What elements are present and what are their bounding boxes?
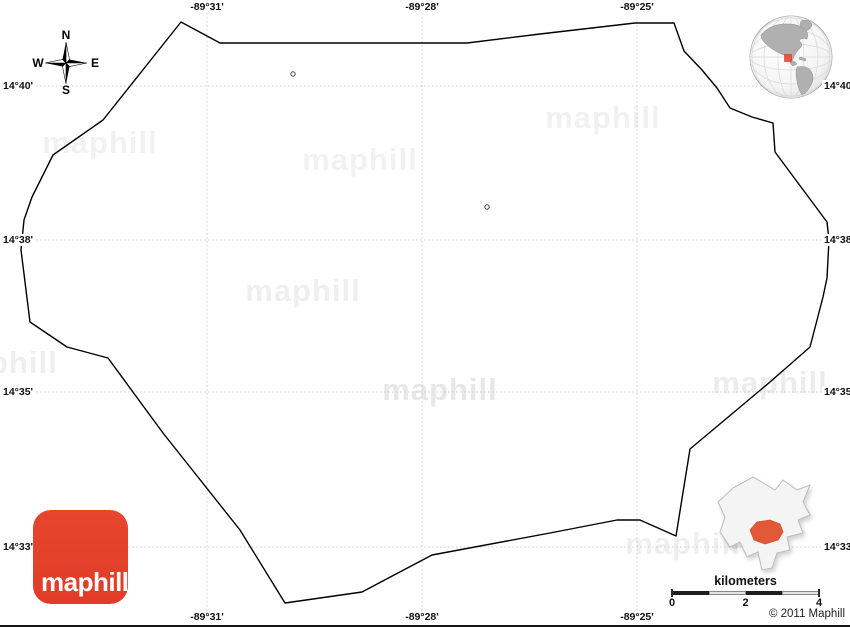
place-marker-icon bbox=[291, 72, 295, 76]
scale-bar-endtick bbox=[671, 589, 673, 597]
maphill-logo: maphill bbox=[33, 510, 128, 604]
coordinate-label-left: 14°38' bbox=[1, 234, 35, 246]
coordinate-label-right: 14°38' bbox=[822, 234, 850, 246]
place-marker-icon bbox=[485, 205, 489, 209]
scale-bar-segment bbox=[746, 591, 783, 595]
locator-inset-map bbox=[704, 471, 816, 577]
scale-bar-segment bbox=[782, 591, 819, 595]
compass-west-label: W bbox=[32, 56, 44, 70]
maphill-logo-text: maphill bbox=[41, 567, 129, 598]
coordinate-label-right: 14°33' bbox=[822, 541, 850, 553]
coordinate-label-bottom: -89°28' bbox=[403, 611, 441, 623]
scale-bar-segment bbox=[672, 591, 709, 595]
copyright-notice: © 2011 Maphill bbox=[769, 608, 845, 620]
coordinate-label-bottom: -89°31' bbox=[188, 611, 226, 623]
coordinate-label-right: 14°35' bbox=[822, 386, 850, 398]
coordinate-label-top: -89°28' bbox=[403, 1, 441, 13]
compass-east-label: E bbox=[91, 56, 99, 70]
locator-globe bbox=[749, 15, 833, 99]
compass-north-label: N bbox=[62, 28, 71, 42]
map-canvas: maphillmaphillmaphillmaphillmaphillmaphi… bbox=[0, 0, 850, 627]
location-marker-icon bbox=[785, 55, 792, 62]
compass-rose-icon: N S W E bbox=[26, 23, 106, 103]
scale-bar-segments bbox=[672, 591, 819, 595]
compass-south-label: S bbox=[62, 83, 70, 97]
compass-star bbox=[45, 42, 87, 84]
scale-bar-endtick bbox=[818, 589, 820, 597]
coordinate-label-left: 14°35' bbox=[1, 386, 35, 398]
coordinate-label-left: 14°33' bbox=[1, 541, 35, 553]
coordinate-label-top: -89°25' bbox=[618, 1, 656, 13]
coordinate-label-top: -89°31' bbox=[188, 1, 226, 13]
scale-bar-tick-label: 2 bbox=[742, 597, 748, 609]
scale-bar-tick-label: 0 bbox=[669, 597, 675, 609]
scale-bar-units-label: kilometers bbox=[672, 574, 819, 588]
scale-bar: kilometers 024 bbox=[672, 574, 819, 610]
coordinate-label-bottom: -89°25' bbox=[618, 611, 656, 623]
coordinate-label-left: 14°40' bbox=[1, 80, 35, 92]
scale-bar-segment bbox=[709, 591, 746, 595]
coordinate-label-right: 14°40' bbox=[822, 80, 850, 92]
